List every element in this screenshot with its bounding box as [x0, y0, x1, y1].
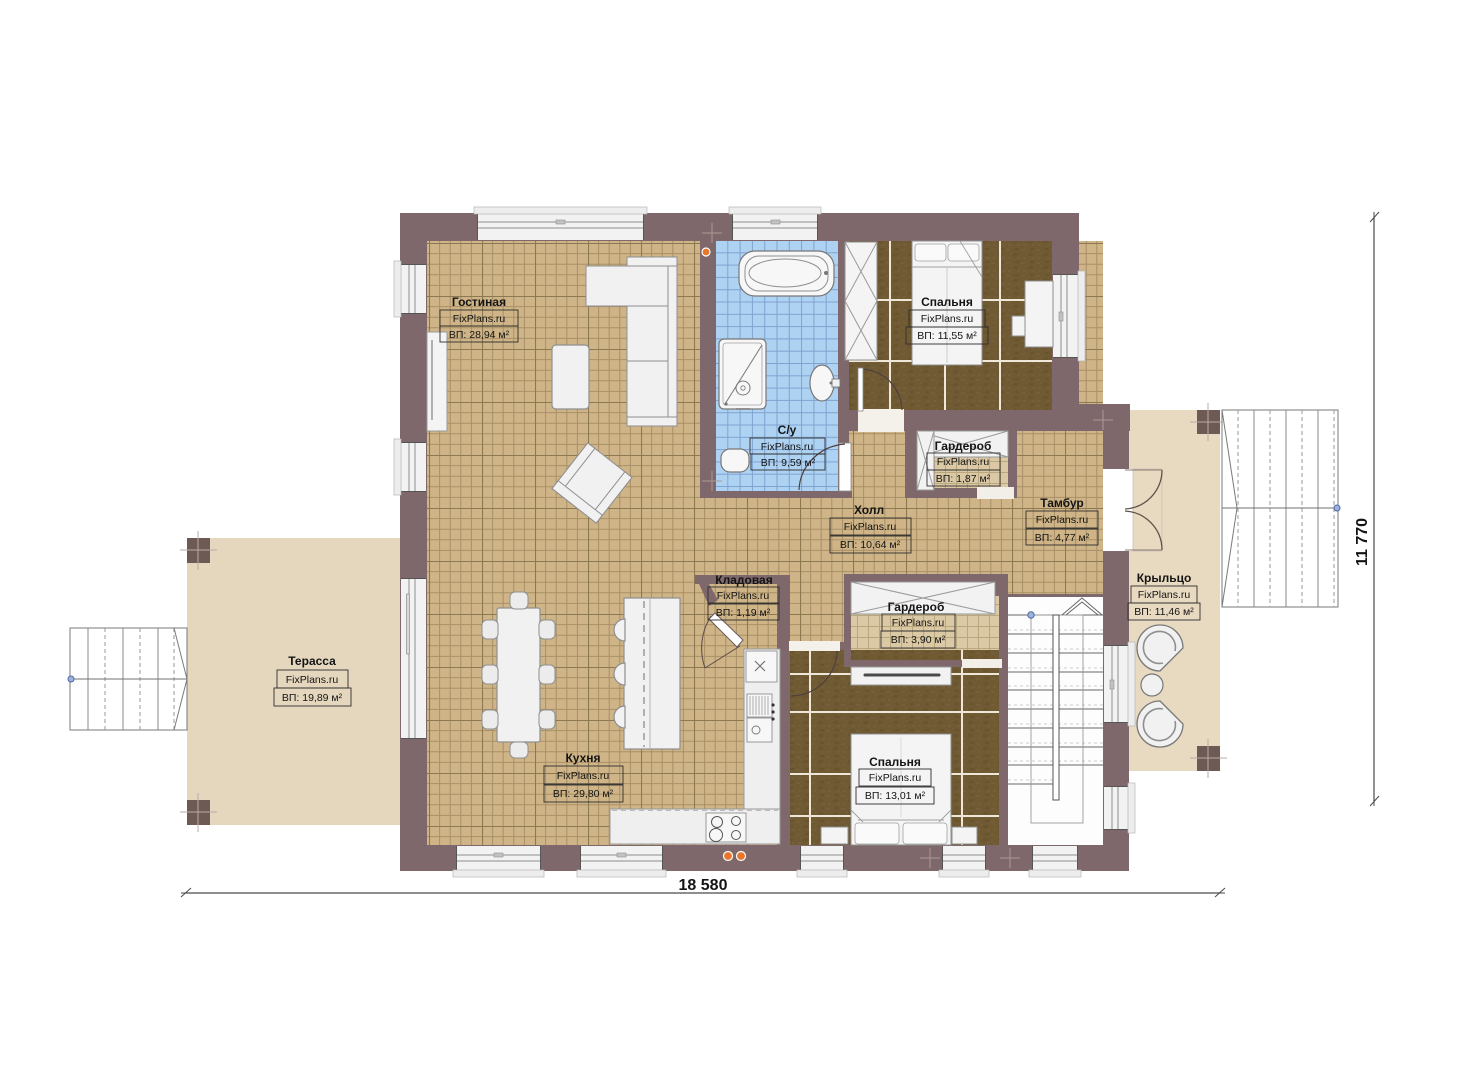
svg-text:FixPlans.ru: FixPlans.ru: [1036, 514, 1089, 526]
svg-text:FixPlans.ru: FixPlans.ru: [921, 313, 974, 325]
svg-text:Гардероб: Гардероб: [888, 600, 945, 614]
svg-text:Терасса: Терасса: [288, 654, 336, 668]
svg-text:Гостиная: Гостиная: [452, 295, 506, 309]
svg-text:ВП: 28,94 м²: ВП: 28,94 м²: [449, 329, 510, 341]
svg-text:FixPlans.ru: FixPlans.ru: [453, 313, 506, 325]
svg-text:FixPlans.ru: FixPlans.ru: [844, 521, 897, 533]
svg-text:Спальня: Спальня: [921, 295, 973, 309]
svg-text:ВП: 11,46 м²: ВП: 11,46 м²: [1134, 606, 1194, 618]
svg-text:Кладовая: Кладовая: [715, 573, 772, 587]
svg-text:FixPlans.ru: FixPlans.ru: [1138, 589, 1191, 601]
svg-text:ВП: 4,77 м²: ВП: 4,77 м²: [1035, 532, 1090, 544]
svg-text:FixPlans.ru: FixPlans.ru: [761, 441, 814, 453]
svg-text:ВП: 3,90 м²: ВП: 3,90 м²: [891, 634, 946, 646]
svg-text:ВП: 11,55 м²: ВП: 11,55 м²: [917, 330, 977, 342]
svg-text:FixPlans.ru: FixPlans.ru: [937, 456, 990, 468]
svg-text:ВП: 1,19 м²: ВП: 1,19 м²: [716, 607, 771, 619]
svg-text:FixPlans.ru: FixPlans.ru: [717, 590, 770, 602]
svg-text:Спальня: Спальня: [869, 755, 921, 769]
svg-text:ВП: 10,64 м²: ВП: 10,64 м²: [840, 539, 901, 551]
svg-text:Крыльцо: Крыльцо: [1137, 571, 1192, 585]
svg-text:ВП: 13,01 м²: ВП: 13,01 м²: [865, 790, 926, 802]
svg-text:Холл: Холл: [854, 503, 884, 517]
svg-text:ВП: 1,87 м²: ВП: 1,87 м²: [936, 473, 991, 485]
svg-text:С/у: С/у: [778, 423, 797, 437]
svg-text:FixPlans.ru: FixPlans.ru: [892, 617, 945, 629]
svg-text:ВП: 9,59 м²: ВП: 9,59 м²: [761, 457, 816, 469]
svg-text:Кухня: Кухня: [565, 751, 600, 765]
svg-text:FixPlans.ru: FixPlans.ru: [869, 772, 922, 784]
svg-text:FixPlans.ru: FixPlans.ru: [286, 674, 339, 686]
svg-text:Тамбур: Тамбур: [1040, 496, 1084, 510]
svg-text:18 580: 18 580: [679, 877, 728, 894]
svg-text:Гардероб: Гардероб: [935, 439, 992, 453]
svg-text:11 770: 11 770: [1354, 518, 1371, 566]
svg-text:FixPlans.ru: FixPlans.ru: [557, 770, 610, 782]
svg-text:ВП: 29,80 м²: ВП: 29,80 м²: [553, 788, 614, 800]
svg-text:ВП: 19,89 м²: ВП: 19,89 м²: [282, 692, 343, 704]
